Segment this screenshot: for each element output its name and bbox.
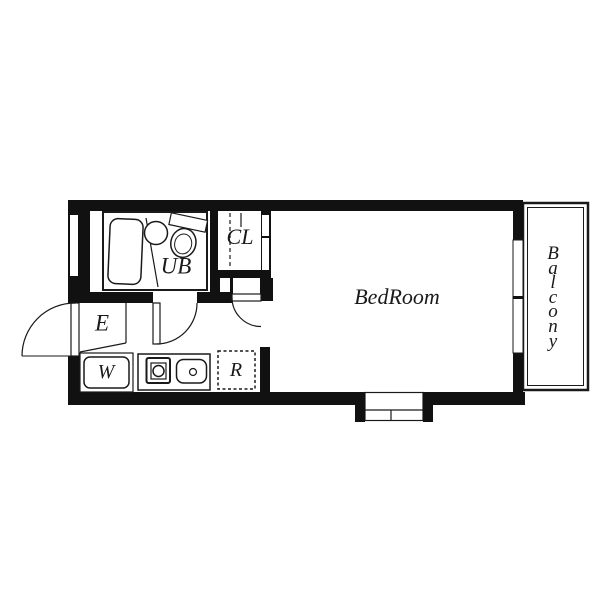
closet-door-panel-bottom	[262, 238, 269, 270]
unit-bath	[103, 212, 208, 290]
bay-post-right	[423, 392, 433, 422]
wall-bottom-left	[68, 392, 355, 405]
wall-ub-closet	[210, 211, 218, 270]
floor-plan: BedRoom UB CL E W R B a l c o n y	[0, 0, 600, 600]
bay-window-frame	[365, 393, 423, 421]
balcony-letter: y	[549, 334, 557, 349]
entrance-label: E	[95, 312, 109, 335]
wall-hall-bedroom-lower	[260, 347, 270, 392]
wall-hall-top-left	[68, 292, 153, 303]
bedroom-label: BedRoom	[354, 286, 440, 308]
refrigerator-label: R	[230, 360, 242, 380]
balcony-label: B a l c o n y	[547, 247, 559, 349]
entrance-door-leaf	[71, 303, 79, 356]
wall-left-pier	[78, 211, 90, 282]
wall-left-lower	[68, 356, 80, 392]
entrance-step-line	[80, 343, 126, 352]
bathtub	[108, 218, 144, 284]
wall-bottom-right	[433, 392, 525, 405]
bedroom-window	[513, 240, 523, 353]
bedroom-door-leaf	[232, 294, 261, 301]
nook-strip	[230, 278, 233, 294]
closet-label: CL	[227, 226, 254, 248]
window-cap-bottom	[70, 276, 78, 282]
bath-door	[153, 303, 197, 344]
entrance-door	[22, 303, 79, 356]
bay-window	[365, 393, 423, 421]
floor-plan-drawing	[0, 0, 600, 600]
wall-right-lower	[513, 353, 523, 392]
bedroom-door	[232, 294, 261, 327]
wall-hall-top-right	[197, 292, 233, 303]
nook-pier-right	[260, 278, 273, 301]
wall-right-upper	[513, 211, 523, 240]
nook-pier-left	[210, 278, 220, 292]
bay-post-left	[355, 392, 365, 422]
wash-basin	[145, 222, 168, 245]
closet-door-panel-top	[262, 215, 269, 236]
bath-door-leaf	[153, 303, 160, 344]
entrance-door-swing-arc	[22, 303, 75, 356]
bedroom-door-swing-arc	[232, 298, 261, 327]
window-cap-top	[70, 211, 78, 215]
wall-left-solid	[68, 282, 90, 292]
unit-bath-label: UB	[161, 255, 192, 278]
window-sash-tick	[513, 296, 523, 299]
wall-left-outer-line	[68, 211, 70, 294]
wall-top	[68, 200, 523, 211]
washing-machine-label: W	[98, 362, 115, 382]
bath-door-swing-arc	[157, 303, 198, 344]
kitchen-sink	[177, 360, 207, 384]
